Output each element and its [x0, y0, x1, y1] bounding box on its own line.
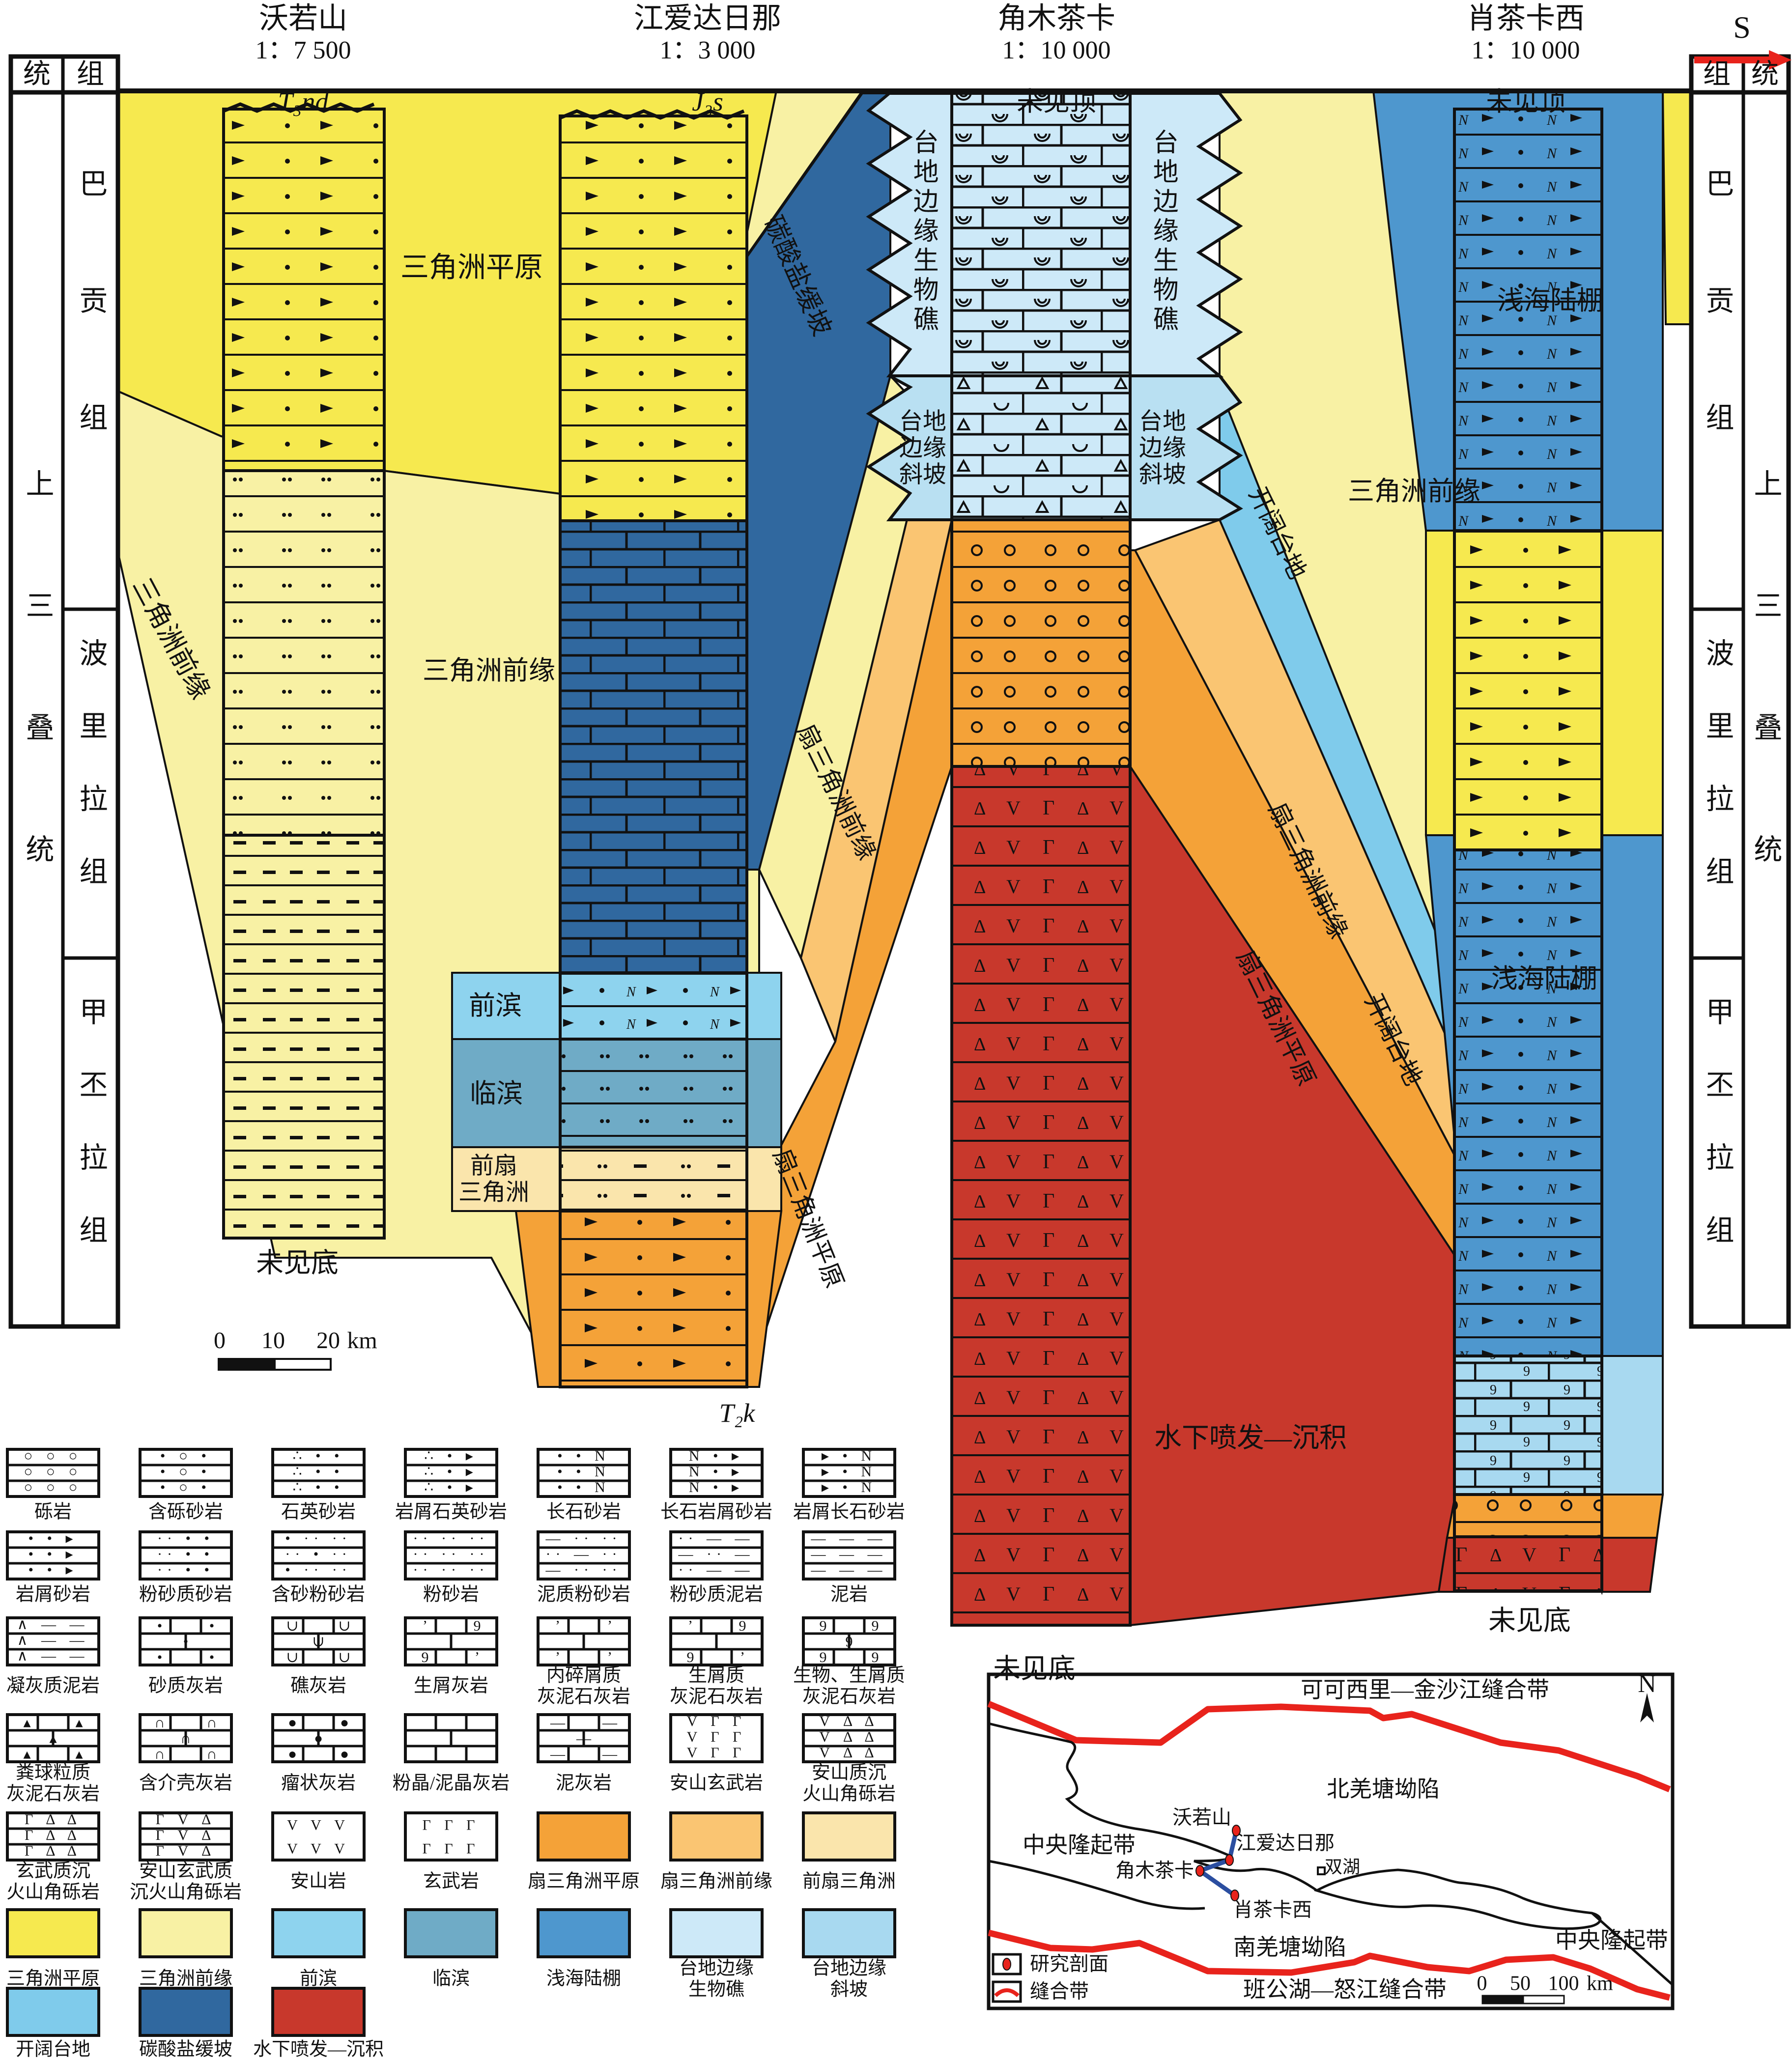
svg-text:ʼ: ʼ — [688, 1618, 693, 1634]
legend-swatch: ▸ • N▸ • N▸ • N — [803, 1448, 895, 1496]
col-xiaochaka-1 — [1454, 109, 1602, 531]
svg-text:·· — —: ·· — — — [679, 1530, 755, 1547]
svg-text:∧ — —: ∧ — — — [17, 1632, 89, 1648]
diagram-svg: Γ Δ V N N — [0, 0, 1792, 2060]
legend-swatch — [538, 1910, 629, 1957]
svg-text:•: • — [183, 1634, 189, 1650]
svg-text:∧ — —: ∧ — — — [17, 1616, 89, 1633]
svg-text:▸ • N: ▸ • N — [822, 1479, 877, 1496]
svg-text:V V V: V V V — [287, 1841, 350, 1857]
svg-text:N • ▸: N • ▸ — [689, 1448, 744, 1464]
svg-text:·· — —: ·· — — — [679, 1562, 755, 1578]
col-jiangai-4 — [560, 1039, 747, 1147]
svg-text:▸ • N: ▸ • N — [822, 1448, 877, 1464]
legend-swatch: V Δ ΔV Δ ΔV Δ Δ — [803, 1713, 895, 1762]
svg-text:N • ▸: N • ▸ — [689, 1464, 744, 1480]
legend-swatch — [405, 1715, 497, 1762]
svg-text:▴: ▴ — [75, 1715, 83, 1731]
svg-text:·· ·· ··: ·· ·· ·· — [413, 1546, 489, 1562]
legend-swatch — [405, 1910, 497, 1957]
svg-text:∪: ∪ — [286, 1618, 298, 1634]
inset-map — [989, 1674, 1673, 2008]
col-xiaochaka-3 — [1454, 850, 1602, 1356]
svg-text:▴: ▴ — [23, 1715, 30, 1731]
col-woruoshan-2 — [224, 471, 384, 835]
svg-text:●: ● — [340, 1746, 349, 1762]
legend-swatch — [7, 1910, 99, 1957]
svg-text:V Δ Δ: V Δ Δ — [819, 1745, 879, 1761]
legend-swatch: — — —— — —— — — — [803, 1530, 895, 1579]
svg-text:●: ● — [340, 1715, 349, 1731]
col-jiangai-5 — [560, 1147, 747, 1211]
col-xiaochaka-5 — [1454, 1495, 1602, 1537]
svg-text:V Γ Γ: V Γ Γ — [687, 1745, 746, 1761]
legend-swatch: ∴ • •∴ • •∴ • • — [273, 1448, 364, 1496]
svg-text:●: ● — [288, 1715, 297, 1731]
svg-text:○ ○ ○: ○ ○ ○ — [24, 1479, 82, 1496]
svg-text:∴ • ▸: ∴ • ▸ — [424, 1464, 478, 1480]
map-shuanghu-marker — [1318, 1867, 1325, 1874]
legend-swatch — [140, 1910, 231, 1957]
svg-text:Γ Γ Γ: Γ Γ Γ — [422, 1841, 480, 1857]
svg-text:Γ Γ Γ: Γ Γ Γ — [422, 1817, 480, 1834]
svg-text:• • ▸: • • ▸ — [28, 1530, 78, 1547]
svg-text:Γ Δ Δ: Γ Δ Δ — [25, 1811, 82, 1828]
col-jiaomuchaka-1 — [952, 93, 1130, 376]
svg-text:○ ○ ○: ○ ○ ○ — [24, 1464, 82, 1480]
legend-swatch: • ·· ···· • ··• ·· ·· — [273, 1530, 364, 1579]
svg-text:V Γ Γ: V Γ Γ — [687, 1713, 746, 1729]
svg-text:— ·· ··: — ·· ·· — [545, 1562, 622, 1578]
svg-text:·· • •: ·· • • — [157, 1530, 214, 1547]
col-xiaochaka-4 — [1454, 1356, 1602, 1495]
stratigraphic-correlation-figure: Γ Δ V N N — [0, 0, 1792, 2060]
svg-text:○ ○ ○: ○ ○ ○ — [24, 1448, 82, 1464]
legend-swatch: ————— — [538, 1715, 629, 1762]
map-scalebar-white — [1523, 1996, 1564, 2004]
svg-text:·· • ··: ·· • ·· — [285, 1546, 351, 1562]
legend-swatch — [7, 1988, 99, 2035]
legend-swatch — [140, 1988, 231, 2035]
legend-swatch — [273, 1988, 364, 2035]
svg-text:▴: ▴ — [49, 1730, 57, 1747]
legend-swatch: Γ Δ ΔΓ Δ ΔΓ Δ Δ — [7, 1811, 99, 1860]
legend-swatch: ∴ • ▸∴ • ▸∴ • ▸ — [405, 1448, 497, 1496]
svg-text:V Γ Γ: V Γ Γ — [687, 1729, 746, 1745]
svg-text:•: • — [209, 1618, 215, 1634]
legend-swatch: ·· — —— ·· —·· — — — [671, 1530, 762, 1579]
legend-swatch — [273, 1910, 364, 1957]
legend-swatch — [671, 1813, 762, 1860]
col-xiaochaka-6 — [1454, 1537, 1602, 1591]
svg-text:ʼ: ʼ — [740, 1649, 745, 1665]
col-jiangai-6 — [560, 1211, 747, 1387]
svg-text:—: — — [550, 1746, 566, 1762]
svg-text:·· ·· ··: ·· ·· ·· — [413, 1562, 489, 1578]
svg-text:●: ● — [288, 1746, 297, 1762]
col-jiaomuchaka-2 — [952, 376, 1130, 520]
svg-text:∩: ∩ — [154, 1715, 165, 1731]
svg-text:ʼ: ʼ — [423, 1618, 427, 1634]
legend-swatch: ▴▴▴▴▴ — [7, 1715, 99, 1762]
col-woruoshan-3 — [224, 835, 384, 1238]
map-legend-profile-dot — [1003, 1958, 1011, 1970]
svg-text:• ·· ··: • ·· ·· — [285, 1562, 351, 1578]
col-jiaomuchaka-3 — [952, 520, 1130, 766]
svg-text:▴: ▴ — [23, 1746, 30, 1762]
svg-text:V V V: V V V — [287, 1817, 350, 1834]
svg-text:∩: ∩ — [206, 1715, 217, 1731]
col-xiaochaka-2 — [1454, 531, 1602, 850]
svg-text:Γ V Δ: Γ V Δ — [156, 1827, 216, 1843]
col-jiaomuchaka-4 — [952, 766, 1130, 1625]
svg-text:• ○ •: • ○ • — [160, 1464, 211, 1480]
legend-swatch: N • ▸N • ▸N • ▸ — [671, 1448, 762, 1496]
legend-swatch — [538, 1813, 629, 1860]
svg-text:ʼ: ʼ — [714, 1634, 719, 1650]
legend-swatch: • • ▸• • ▸• • ▸ — [7, 1530, 99, 1579]
legend-swatch: • • N• • N• • N — [538, 1448, 629, 1496]
svg-text:Γ V Δ: Γ V Δ — [156, 1843, 216, 1859]
svg-text:—: — — [602, 1746, 618, 1762]
svg-text:9: 9 — [872, 1618, 879, 1634]
col-jiangai-1 — [560, 116, 747, 521]
svg-text:9: 9 — [872, 1649, 879, 1665]
svg-text:∪: ∪ — [286, 1649, 298, 1665]
svg-text:9: 9 — [820, 1618, 827, 1634]
svg-text:∩: ∩ — [206, 1746, 217, 1762]
svg-text:ʼ: ʼ — [581, 1634, 586, 1650]
right-axis-table — [1691, 56, 1789, 1326]
svg-text:• • ▸: • • ▸ — [28, 1562, 78, 1578]
svg-text:∴ • •: ∴ • • — [292, 1448, 344, 1464]
svg-text:—: — — [576, 1730, 592, 1747]
svg-text:∴ • ▸: ∴ • ▸ — [424, 1448, 478, 1464]
legend-swatch: ∧ — —∧ — —∧ — — — [7, 1616, 99, 1665]
svg-text:—: — — [602, 1715, 618, 1731]
svg-text:Γ V Δ: Γ V Δ — [156, 1811, 216, 1828]
svg-text:ʼ: ʼ — [475, 1649, 480, 1665]
svg-text:·· — ··: ·· — ·· — [546, 1546, 622, 1562]
svg-text:— — —: — — — — [811, 1562, 887, 1578]
legend-swatch — [803, 1813, 895, 1860]
legend-swatch: ʼʼʼʼʼ — [538, 1618, 629, 1665]
legend-swatch: ʼ9ʼ9ʼ — [405, 1618, 497, 1665]
svg-text:·· • •: ·· • • — [157, 1546, 214, 1562]
legend-swatch — [671, 1910, 762, 1957]
legend-swatch: • ○ •• ○ •• ○ • — [140, 1448, 231, 1496]
legend-swatch: ●●●●● — [273, 1715, 364, 1762]
svg-text:N • ▸: N • ▸ — [689, 1479, 744, 1496]
svg-text:• • N: • • N — [557, 1479, 610, 1496]
svg-text:∩: ∩ — [180, 1730, 191, 1747]
svg-text:ʼ: ʼ — [555, 1649, 560, 1665]
svg-text:9: 9 — [687, 1649, 694, 1665]
legend-swatches: ○ ○ ○○ ○ ○○ ○ ○• ○ •• ○ •• ○ •∴ • •∴ • •… — [7, 1448, 895, 2035]
svg-text:• • ▸: • • ▸ — [28, 1546, 78, 1562]
svg-text:— — —: — — — — [811, 1530, 887, 1547]
svg-text:• ○ •: • ○ • — [160, 1448, 211, 1464]
svg-text:·· ·· ··: ·· ·· ·· — [413, 1530, 489, 1547]
svg-text:• • N: • • N — [557, 1464, 610, 1480]
legend-swatch: ·· • •·· • •·· • • — [140, 1530, 231, 1579]
map-frame — [989, 1674, 1673, 2008]
main-scalebar — [219, 1359, 331, 1370]
svg-text:• • N: • • N — [557, 1448, 610, 1464]
svg-text:• ·· ··: • ·· ·· — [285, 1530, 351, 1547]
legend-swatch: Γ Γ ΓΓ Γ Γ — [405, 1813, 497, 1860]
svg-text:•: • — [157, 1618, 163, 1634]
svg-text:—: — — [550, 1715, 566, 1731]
legend-swatch: V V VV V V — [273, 1813, 364, 1860]
svg-text:▴: ▴ — [75, 1746, 83, 1762]
svg-text:— — —: — — — — [811, 1546, 887, 1562]
svg-text:∴ • ▸: ∴ • ▸ — [424, 1479, 478, 1496]
svg-text:∪: ∪ — [338, 1649, 350, 1665]
legend-swatch: ○ ○ ○○ ○ ○○ ○ ○ — [7, 1448, 99, 1496]
svg-text:∴ • •: ∴ • • — [292, 1464, 344, 1480]
svg-text:9: 9 — [820, 1649, 827, 1665]
svg-text:●: ● — [314, 1730, 323, 1747]
legend-swatch — [803, 1910, 895, 1957]
svg-text:9: 9 — [422, 1649, 429, 1665]
legend-swatch: ••••• — [140, 1618, 231, 1665]
svg-text:ʼ: ʼ — [555, 1618, 560, 1634]
svg-text:∪: ∪ — [312, 1634, 324, 1650]
svg-text:• ○ •: • ○ • — [160, 1479, 211, 1496]
legend-swatch: Γ V ΔΓ V ΔΓ V Δ — [140, 1811, 231, 1860]
svg-text:▸ • N: ▸ • N — [822, 1464, 877, 1480]
map-scalebar-black — [1482, 1996, 1523, 2004]
svg-text:V Δ Δ: V Δ Δ — [819, 1713, 879, 1729]
col-woruoshan-1 — [224, 109, 384, 471]
svg-text:∩: ∩ — [154, 1746, 165, 1762]
legend-swatch: ∪∪∪∪∪ — [273, 1618, 364, 1665]
col-jiangai-3 — [560, 973, 747, 1039]
svg-text:— ·· ··: — ·· ·· — [545, 1530, 622, 1547]
svg-text:∧ — —: ∧ — — — [17, 1648, 89, 1664]
col-jiangai-2 — [560, 521, 747, 973]
svg-text:ʼ: ʼ — [449, 1634, 454, 1650]
svg-text:ʼ: ʼ — [607, 1649, 612, 1665]
svg-text:V Δ Δ: V Δ Δ — [819, 1729, 879, 1745]
svg-text:ʼ: ʼ — [607, 1618, 612, 1634]
zone-yellow-sliver — [1663, 91, 1691, 324]
svg-text:∪: ∪ — [338, 1618, 350, 1634]
legend-swatch: ∩∩∩∩∩ — [140, 1715, 231, 1762]
svg-text:Γ Δ Δ: Γ Δ Δ — [25, 1843, 82, 1859]
svg-text:•: • — [209, 1649, 215, 1665]
svg-text:9: 9 — [474, 1618, 481, 1634]
legend-swatch: V Γ ΓV Γ ΓV Γ Γ — [671, 1713, 762, 1762]
svg-text:•: • — [157, 1649, 163, 1665]
svg-text:∴ • •: ∴ • • — [292, 1479, 344, 1496]
svg-text:9: 9 — [846, 1634, 853, 1650]
svg-text:Γ Δ Δ: Γ Δ Δ — [25, 1827, 82, 1843]
legend-swatch: ʼ9ʼ9ʼ — [671, 1618, 762, 1665]
svg-text:·· • •: ·· • • — [157, 1562, 214, 1578]
svg-text:— ·· —: — ·· — — [678, 1546, 755, 1562]
legend-swatch: — ·· ···· — ··— ·· ·· — [538, 1530, 629, 1579]
legend-swatch: ·· ·· ···· ·· ···· ·· ·· — [405, 1530, 497, 1579]
legend-swatch: 99999 — [803, 1618, 895, 1665]
svg-text:9: 9 — [739, 1618, 746, 1634]
